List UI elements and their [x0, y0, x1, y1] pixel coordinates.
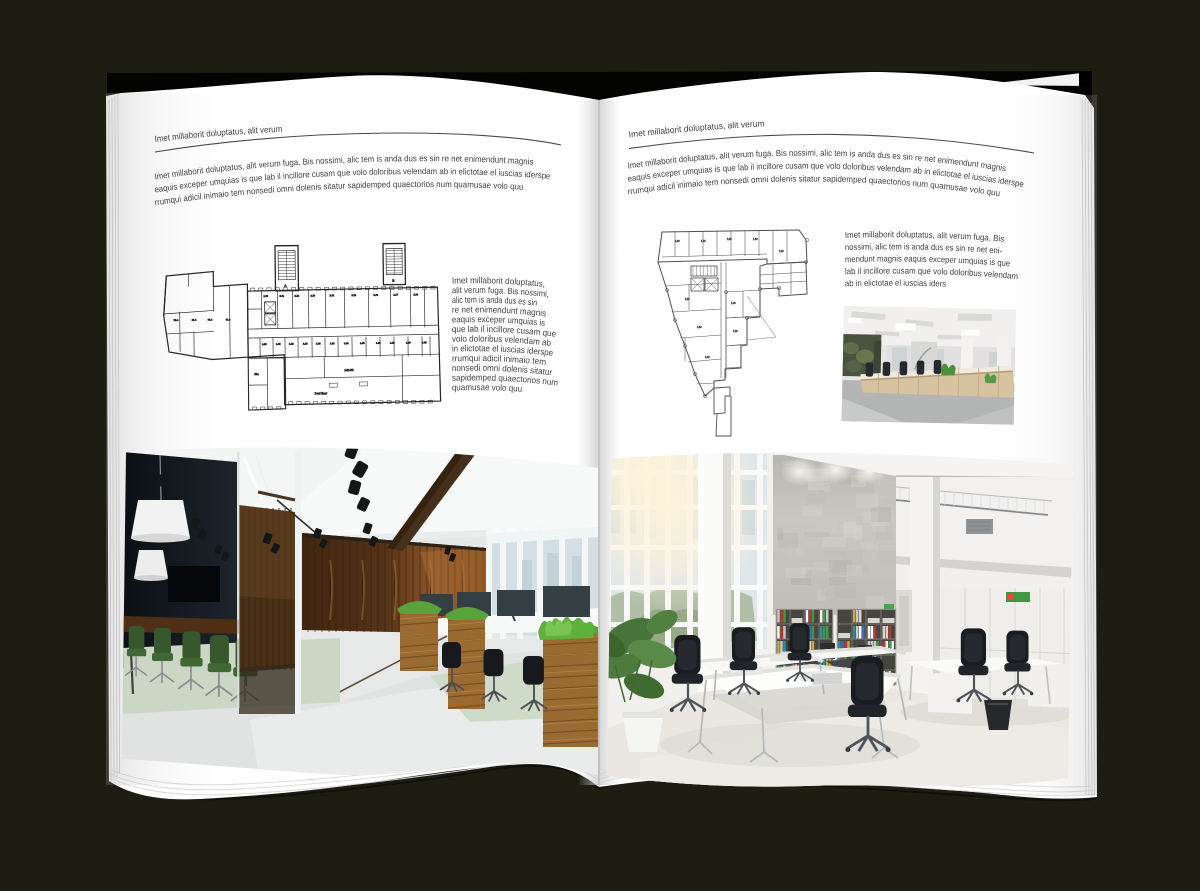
svg-text:1.60: 1.60 — [697, 327, 702, 329]
svg-text:23a: 23a — [254, 372, 259, 376]
svg-text:1.35: 1.35 — [360, 343, 365, 345]
svg-text:2-nd floor: 2-nd floor — [315, 391, 328, 395]
svg-text:2.77: 2.77 — [394, 295, 399, 297]
svg-text:1.35: 1.35 — [406, 342, 411, 344]
svg-text:1.05: 1.05 — [344, 343, 349, 345]
svg-text:1.20: 1.20 — [733, 331, 738, 333]
svg-text:1.05: 1.05 — [390, 343, 395, 345]
svg-text:41.4: 41.4 — [226, 319, 231, 321]
svg-text:1.40: 1.40 — [731, 303, 736, 305]
svg-text:2.71: 2.71 — [280, 296, 285, 298]
svg-text:1.05: 1.05 — [262, 344, 267, 346]
svg-text:140.00: 140.00 — [344, 368, 354, 372]
svg-text:2.76: 2.76 — [374, 295, 379, 297]
svg-text:1.10: 1.10 — [779, 251, 784, 253]
svg-text:2.73: 2.73 — [311, 295, 316, 297]
svg-text:20.4: 20.4 — [174, 320, 179, 322]
svg-text:1.50: 1.50 — [727, 239, 732, 241]
svg-text:2.74: 2.74 — [330, 295, 335, 297]
svg-text:27.4: 27.4 — [192, 320, 197, 322]
svg-text:1.35: 1.35 — [276, 344, 281, 346]
svg-text:2.70: 2.70 — [264, 296, 269, 298]
svg-text:1.80: 1.80 — [685, 299, 690, 301]
svg-text:1.05: 1.05 — [303, 343, 308, 345]
svg-text:1.70: 1.70 — [701, 241, 706, 243]
svg-text:1.65: 1.65 — [376, 343, 381, 345]
svg-text:1.65: 1.65 — [422, 342, 427, 344]
svg-text:1.00: 1.00 — [705, 357, 710, 359]
svg-text:ab in elictotae el iuscias ide: ab in elictotae el iuscias iders — [845, 278, 947, 289]
svg-text:2.70: 2.70 — [414, 294, 419, 296]
svg-text:2.75: 2.75 — [352, 295, 357, 297]
svg-text:1.00: 1.00 — [675, 241, 680, 243]
svg-text:1.65: 1.65 — [289, 344, 294, 346]
svg-text:34.4: 34.4 — [208, 319, 213, 321]
svg-text:1.35: 1.35 — [316, 343, 321, 345]
svg-text:2.72: 2.72 — [295, 296, 300, 298]
svg-text:1.65: 1.65 — [330, 343, 335, 345]
svg-text:1.30: 1.30 — [753, 239, 758, 241]
svg-text:quamusae volo quu: quamusae volo quu — [452, 382, 523, 394]
svg-text:B: B — [392, 279, 394, 283]
